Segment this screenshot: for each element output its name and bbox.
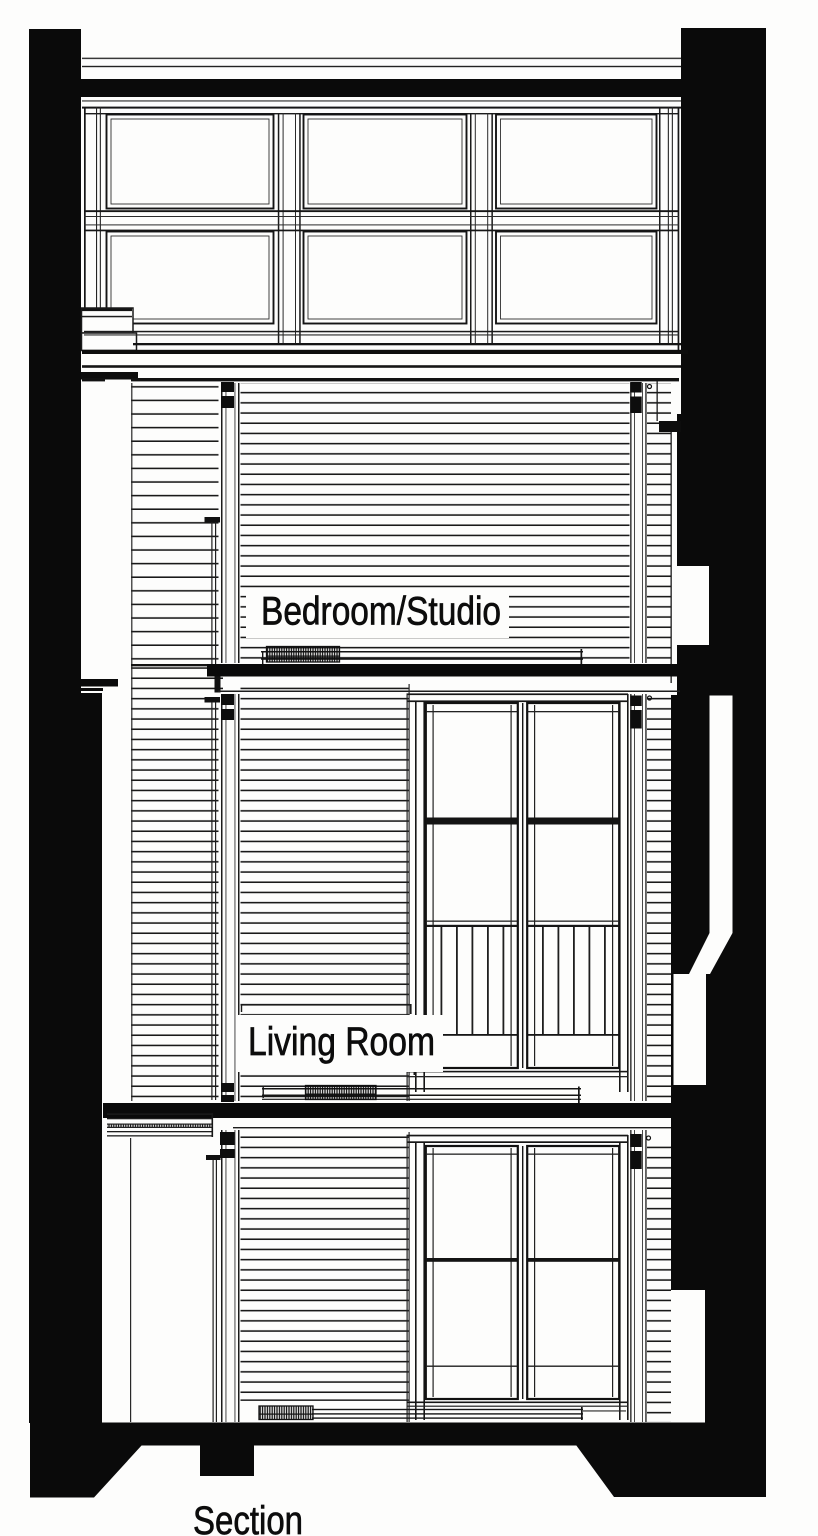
svg-text:Living Room: Living Room — [248, 1020, 435, 1064]
svg-text:Section: Section — [193, 1499, 303, 1536]
svg-text:Bedroom/Studio: Bedroom/Studio — [261, 590, 501, 634]
